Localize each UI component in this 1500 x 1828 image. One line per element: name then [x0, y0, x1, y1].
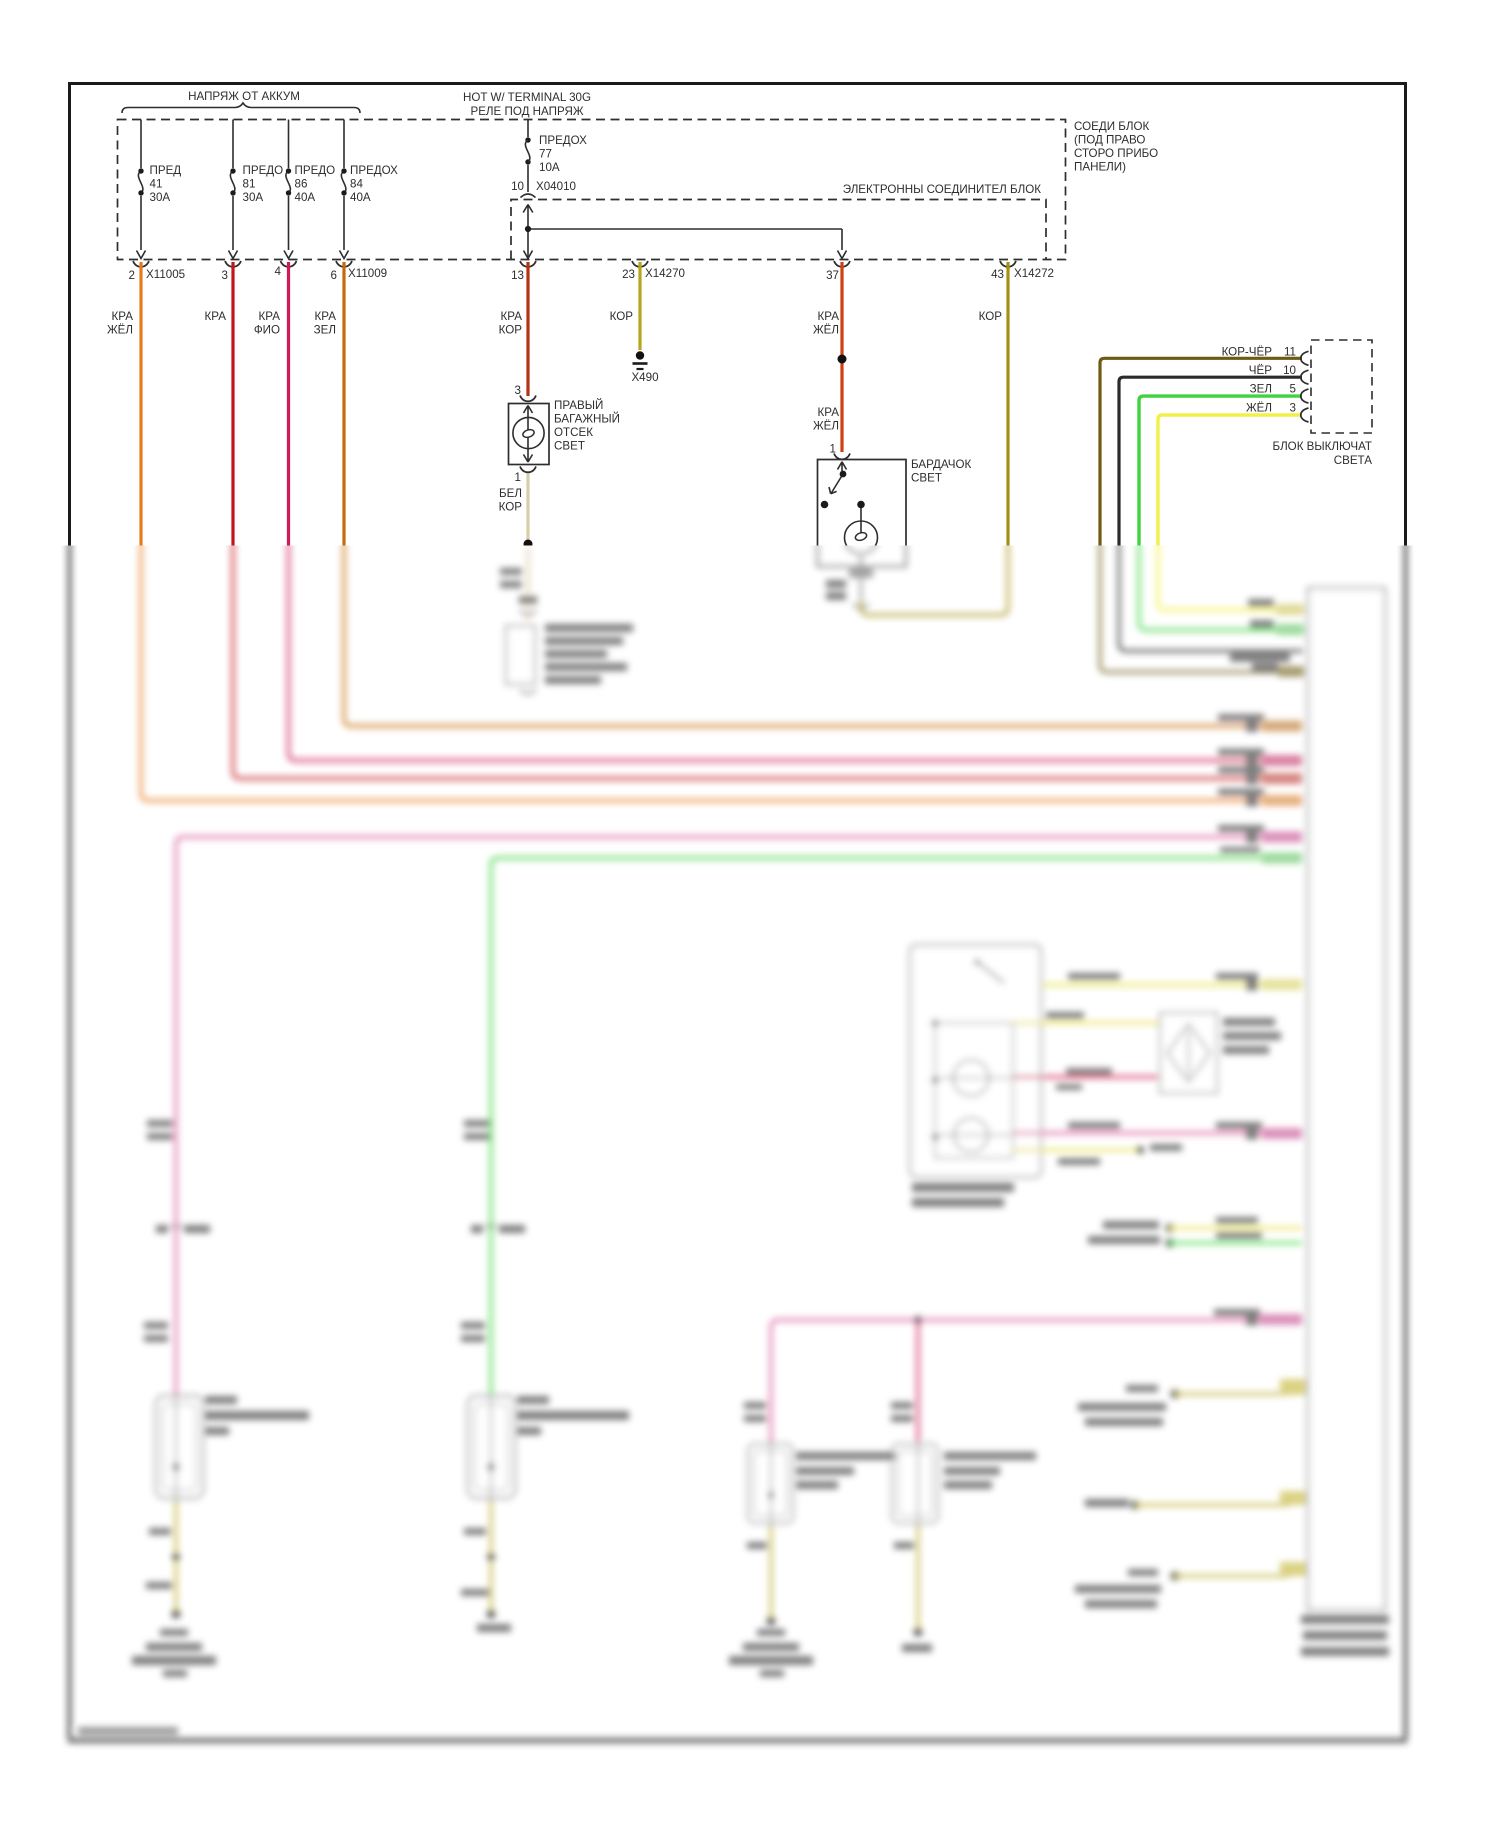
svg-text:4: 4 — [275, 265, 282, 278]
svg-text:ПРЕДОХ: ПРЕДОХ — [350, 164, 398, 177]
svg-text:БАРДАЧОК: БАРДАЧОК — [911, 458, 971, 471]
svg-text:ЖЁЛ: ЖЁЛ — [813, 324, 839, 337]
svg-text:HOT W/ TERMINAL 30G: HOT W/ TERMINAL 30G — [463, 91, 591, 104]
svg-text:X11009: X11009 — [348, 267, 387, 280]
svg-text:ФИО: ФИО — [254, 324, 280, 337]
svg-text:30А: 30А — [150, 191, 171, 204]
svg-text:ОТСЕК: ОТСЕК — [554, 426, 593, 439]
svg-text:ЧЁР: ЧЁР — [1249, 364, 1272, 377]
svg-text:КРА: КРА — [205, 310, 227, 323]
svg-text:ЖЁЛ: ЖЁЛ — [813, 420, 839, 433]
svg-text:1: 1 — [830, 443, 836, 456]
svg-text:СВЕТ: СВЕТ — [911, 472, 942, 485]
svg-text:6: 6 — [331, 269, 337, 282]
svg-text:40А: 40А — [295, 191, 316, 204]
svg-text:81: 81 — [243, 178, 256, 191]
svg-text:86: 86 — [295, 178, 308, 191]
svg-text:40А: 40А — [350, 191, 371, 204]
svg-text:ЖЁЛ: ЖЁЛ — [107, 324, 133, 337]
svg-text:ЗЕЛ: ЗЕЛ — [314, 324, 336, 337]
svg-text:84: 84 — [350, 178, 363, 191]
svg-text:ПРЕДО: ПРЕДО — [243, 164, 284, 177]
svg-text:X11005: X11005 — [146, 268, 185, 281]
svg-text:X14270: X14270 — [645, 267, 685, 280]
svg-text:(ПОД ПРАВО: (ПОД ПРАВО — [1074, 134, 1145, 147]
svg-text:ЖЁЛ: ЖЁЛ — [1246, 402, 1272, 415]
svg-text:3: 3 — [222, 269, 228, 282]
svg-text:ПРАВЫЙ: ПРАВЫЙ — [554, 399, 603, 412]
svg-text:КРА: КРА — [259, 310, 281, 323]
svg-text:37: 37 — [826, 269, 839, 282]
svg-text:13: 13 — [511, 269, 524, 282]
svg-text:ЗЕЛ: ЗЕЛ — [1250, 383, 1272, 396]
svg-text:КОР-ЧЁР: КОР-ЧЁР — [1222, 346, 1273, 359]
svg-text:СТОРО ПРИБО: СТОРО ПРИБО — [1074, 147, 1158, 160]
svg-text:СВЕТА: СВЕТА — [1334, 454, 1373, 467]
svg-text:X14272: X14272 — [1014, 267, 1054, 280]
svg-text:3: 3 — [515, 384, 521, 397]
svg-text:ПАНЕЛИ): ПАНЕЛИ) — [1074, 161, 1126, 174]
svg-text:41: 41 — [150, 178, 163, 191]
svg-text:ПРЕД: ПРЕД — [150, 164, 182, 177]
svg-text:77: 77 — [539, 148, 552, 161]
svg-text:КОР: КОР — [499, 324, 523, 337]
svg-text:КРА: КРА — [315, 310, 337, 323]
svg-text:10: 10 — [511, 180, 524, 193]
svg-text:СОЕДИ БЛОК: СОЕДИ БЛОК — [1074, 120, 1150, 133]
svg-text:X490: X490 — [631, 371, 658, 384]
svg-text:43: 43 — [991, 268, 1004, 281]
svg-text:КРА: КРА — [112, 310, 134, 323]
svg-text:3: 3 — [1290, 402, 1296, 415]
svg-text:БЛОК ВЫКЛЮЧАТ: БЛОК ВЫКЛЮЧАТ — [1272, 440, 1372, 453]
svg-text:НАПРЯЖ ОТ АККУМ: НАПРЯЖ ОТ АККУМ — [188, 90, 300, 103]
svg-text:1: 1 — [515, 471, 521, 484]
svg-text:2: 2 — [129, 269, 135, 282]
svg-text:10А: 10А — [539, 161, 560, 174]
svg-text:X04010: X04010 — [536, 180, 576, 193]
svg-text:ЭЛЕКТРОННЫ СОЕДИНИТЕЛ БЛОК: ЭЛЕКТРОННЫ СОЕДИНИТЕЛ БЛОК — [843, 183, 1041, 196]
svg-text:ПРЕДО: ПРЕДО — [295, 164, 336, 177]
svg-text:РЕЛЕ ПОД НАПРЯЖ: РЕЛЕ ПОД НАПРЯЖ — [470, 105, 583, 118]
svg-text:23: 23 — [622, 268, 635, 281]
svg-text:БАГАЖНЫЙ: БАГАЖНЫЙ — [554, 413, 620, 426]
svg-text:КОР: КОР — [499, 501, 523, 514]
svg-text:10: 10 — [1283, 364, 1296, 377]
svg-text:КРА: КРА — [818, 310, 840, 323]
svg-text:КРА: КРА — [501, 310, 523, 323]
svg-text:БЕЛ: БЕЛ — [499, 487, 522, 500]
svg-text:КОР: КОР — [610, 310, 634, 323]
svg-text:30А: 30А — [243, 191, 264, 204]
svg-text:ПРЕДОХ: ПРЕДОХ — [539, 134, 587, 147]
svg-text:11: 11 — [1284, 346, 1296, 359]
svg-text:КОР: КОР — [979, 310, 1003, 323]
svg-text:КРА: КРА — [818, 406, 840, 419]
svg-text:5: 5 — [1290, 383, 1296, 396]
svg-text:СВЕТ: СВЕТ — [554, 440, 585, 453]
